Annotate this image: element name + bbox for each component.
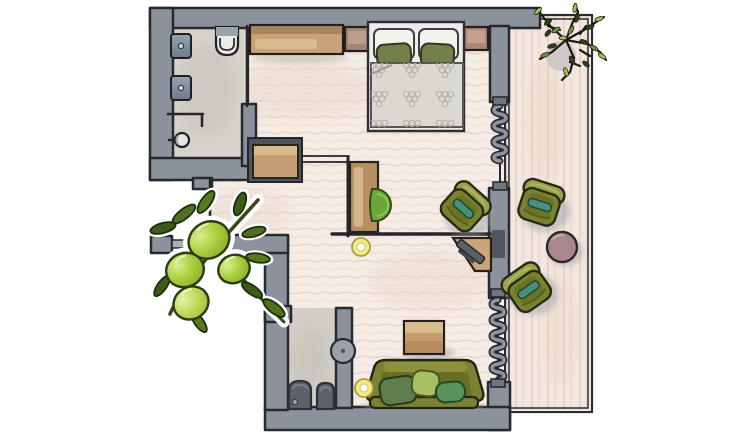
floor-plan-svg [0, 0, 754, 435]
wc-round-washbasin [331, 339, 355, 363]
wall-right-upper [490, 26, 509, 102]
wall-stub-detached [151, 236, 172, 253]
floor-lamp-bedroom [352, 238, 370, 256]
wc-bidet [317, 383, 334, 409]
sofa [364, 360, 484, 418]
wall-bathroom-bottom [150, 158, 256, 180]
wall-top [150, 8, 540, 28]
wall-panel-dark [492, 230, 505, 258]
washbasin-1 [171, 34, 191, 58]
floor-lamp-living [355, 379, 373, 397]
toilet-wallhung [216, 27, 238, 55]
double-bed [368, 22, 464, 131]
dresser [248, 138, 302, 182]
floor-plan-stage [0, 0, 754, 435]
nightstand-right [464, 27, 488, 50]
sideboard-wardrobe [250, 25, 343, 54]
wc-toilet [289, 381, 311, 409]
sofa-cushion-green [435, 381, 466, 403]
washbasin-2 [171, 76, 191, 100]
duvet [371, 63, 463, 127]
balcony-side-table [547, 232, 577, 262]
nightstand-left [345, 27, 369, 51]
wall-left [150, 8, 173, 180]
